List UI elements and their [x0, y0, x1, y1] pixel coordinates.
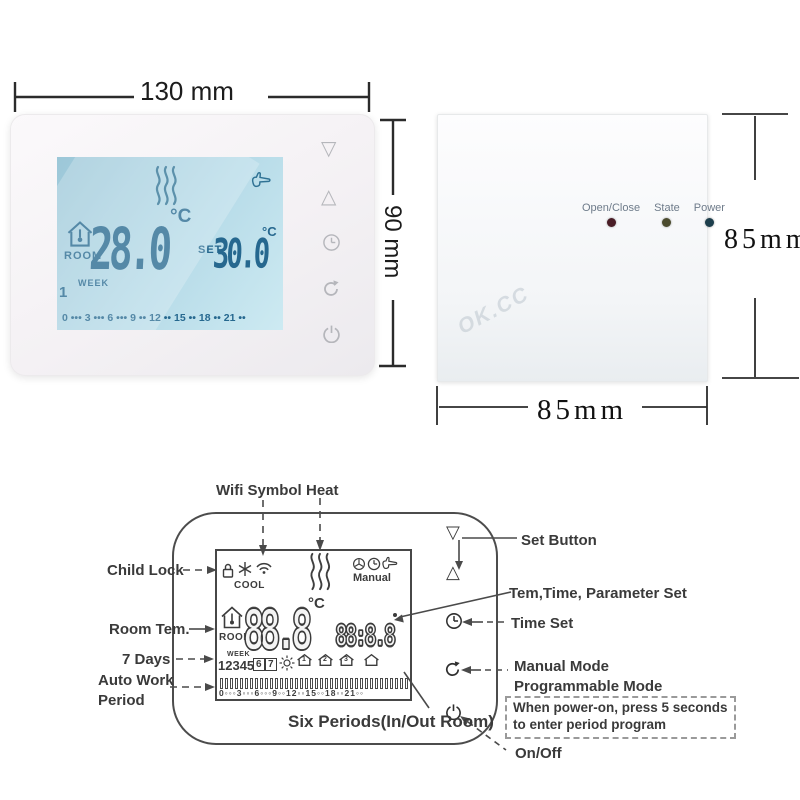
- moon-icon: [391, 654, 406, 674]
- hand-icon: [250, 170, 273, 193]
- cycle-icon: [443, 660, 462, 684]
- room-temperature-value: 28.0: [88, 217, 170, 284]
- watermark: OK.CC: [454, 282, 534, 340]
- callout-six-periods: Six Periods(In/Out Room): [288, 712, 494, 732]
- callout-tem-time-parameter-set: Tem,Time, Parameter Set: [509, 584, 687, 604]
- led-power-dot: [705, 218, 714, 227]
- led-state-label: State: [654, 202, 680, 214]
- heat-icon: [307, 552, 333, 597]
- thermostat-width-dimension: 130 mm: [140, 76, 234, 107]
- week-label: WEEK: [78, 278, 109, 288]
- thermostat-height-dimension: 90 mm: [378, 205, 406, 278]
- temperature-unit: °C: [308, 595, 325, 612]
- callout-manual-programmable-mode: Manual Mode Programmable Mode: [514, 657, 662, 698]
- led-open-close: Open/Close: [582, 202, 640, 227]
- period-house-1-icon: 1: [296, 653, 313, 672]
- power-on-note-line1: When power-on, press 5 seconds: [513, 700, 728, 717]
- week-day-value: 1: [59, 284, 67, 301]
- led-open-close-dot: [607, 218, 616, 227]
- manual-label: Manual: [353, 572, 391, 584]
- power-on-note-line2: to enter period program: [513, 717, 728, 734]
- status-dot-icon: [393, 613, 397, 617]
- receiver-box: Open/Close State Power OK.CC: [437, 114, 708, 382]
- mode-button[interactable]: [321, 279, 341, 304]
- week-label: WEEK: [227, 651, 250, 658]
- callout-manual-mode-line2: Programmable Mode: [514, 677, 662, 697]
- period-digit: 1: [302, 656, 306, 663]
- diagram-timeline: 0◦◦◦3◦◦◦6◦◦◦9◦◦12◦◦15◦◦18◦◦21◦◦: [219, 688, 364, 698]
- heat-icon: [153, 165, 179, 212]
- period-house-2-icon: 2: [317, 653, 334, 672]
- period-digit: 3: [344, 656, 348, 663]
- up-button[interactable]: △: [321, 186, 336, 206]
- room-temperature-unit: °C: [170, 206, 191, 228]
- callout-wifi-symbol: Wifi Symbol: [216, 481, 302, 501]
- callout-heat: Heat: [306, 481, 339, 501]
- led-indicator-row: Open/Close State Power: [582, 202, 725, 227]
- room-label: ROOM: [64, 250, 102, 262]
- weekday-7-box: 7: [265, 658, 277, 671]
- led-power: Power: [694, 202, 725, 227]
- thermostat-lcd: ROOM 28.0 °C SET 30.0 °C WEEK 1 0 ••• 3 …: [57, 157, 283, 330]
- callout-room-tem: Room Tem.: [109, 620, 190, 640]
- power-button[interactable]: [322, 324, 341, 348]
- weekday-6-box: 6: [253, 658, 265, 671]
- callout-auto-work-period: Auto Work Period: [98, 671, 174, 712]
- snowflake-icon: [237, 561, 253, 582]
- period-house-4-icon: [363, 653, 380, 672]
- receiver-height-dimension: 85mm: [724, 224, 800, 256]
- down-button[interactable]: ▽: [321, 138, 336, 158]
- time-set-icon: [445, 612, 463, 635]
- callout-set-button: Set Button: [521, 531, 597, 551]
- time-digits: 88:8.8: [335, 620, 393, 654]
- receiver-width-dimension: 85mm: [537, 394, 627, 427]
- callout-auto-work-line1: Auto Work: [98, 671, 174, 691]
- callout-auto-work-line2: Period: [98, 691, 174, 711]
- diagram-lcd: COOL Manual: [215, 549, 412, 701]
- callout-time-set: Time Set: [511, 614, 573, 634]
- weekday-digits: 12345: [218, 658, 254, 673]
- sun-icon: [279, 655, 295, 676]
- up-triangle-icon: △: [446, 564, 460, 582]
- period-house-3-icon: 3: [338, 653, 355, 672]
- callout-child-lock: Child Lock: [107, 561, 184, 581]
- cool-label: COOL: [234, 580, 265, 591]
- led-state: State: [654, 202, 680, 227]
- room-house-icon: [66, 219, 94, 254]
- led-state-dot: [662, 218, 671, 227]
- callout-on-off: On/Off: [515, 744, 562, 764]
- time-button[interactable]: [322, 233, 341, 257]
- callout-manual-mode-line1: Manual Mode: [514, 657, 662, 677]
- led-power-label: Power: [694, 202, 725, 214]
- product-sheet: 130 mm 90 mm ROOM: [0, 0, 800, 800]
- set-temperature-unit: °C: [262, 224, 277, 239]
- child-lock-icon: [221, 562, 235, 584]
- callout-seven-days: 7 Days: [122, 650, 170, 670]
- wifi-icon: [255, 560, 273, 580]
- power-on-note: When power-on, press 5 seconds to enter …: [505, 696, 736, 739]
- led-open-close-label: Open/Close: [582, 202, 640, 214]
- thermostat-photo: ROOM 28.0 °C SET 30.0 °C WEEK 1 0 ••• 3 …: [10, 114, 375, 376]
- lcd-timeline: 0 ••• 3 ••• 6 ••• 9 •• 12 •• 15 •• 18 ••…: [62, 312, 246, 324]
- set-temperature-value: 30.0: [212, 230, 269, 278]
- down-triangle-icon: ▽: [446, 524, 460, 542]
- period-digit: 2: [323, 656, 327, 663]
